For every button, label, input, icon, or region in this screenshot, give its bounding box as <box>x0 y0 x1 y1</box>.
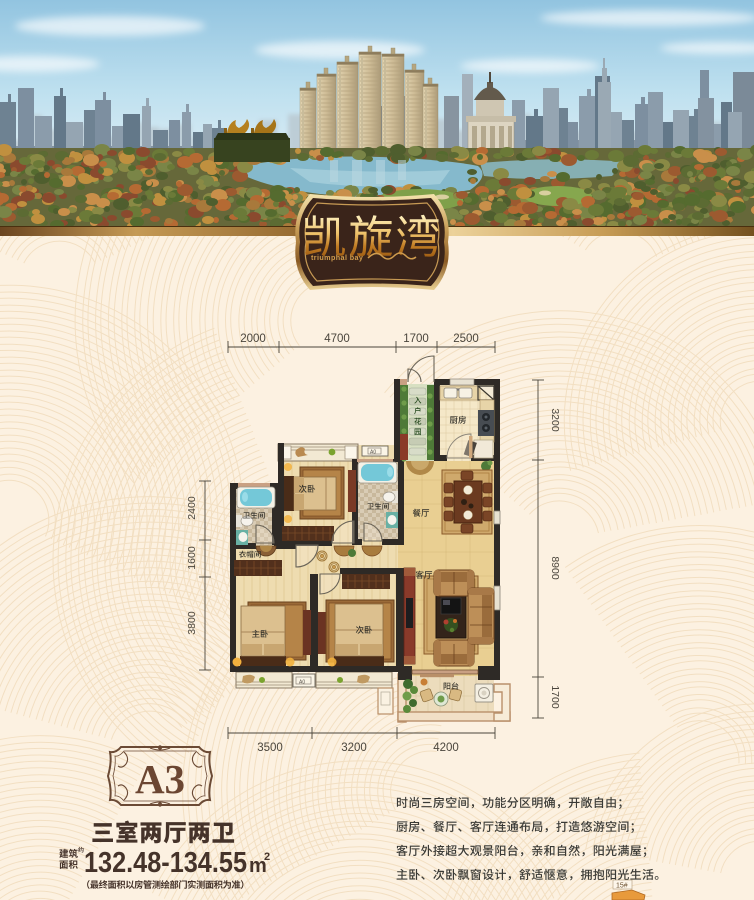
svg-text:8900: 8900 <box>549 556 561 580</box>
svg-text:2400: 2400 <box>186 496 198 520</box>
svg-text:3500: 3500 <box>257 742 283 754</box>
svg-text:A0: A0 <box>370 450 376 456</box>
svg-text:A0: A0 <box>299 680 305 686</box>
svg-text:3200: 3200 <box>341 742 367 754</box>
svg-text:132.48-134.55: 132.48-134.55 <box>84 847 247 879</box>
svg-text:4200: 4200 <box>433 742 459 754</box>
svg-text:2: 2 <box>264 851 270 863</box>
svg-text:2000: 2000 <box>240 333 266 345</box>
svg-text:1700: 1700 <box>549 685 561 709</box>
svg-text:A3: A3 <box>135 756 185 802</box>
svg-text:3200: 3200 <box>549 408 561 432</box>
svg-text:3800: 3800 <box>186 611 198 635</box>
svg-text:1600: 1600 <box>186 546 198 570</box>
svg-text:1700: 1700 <box>403 333 429 345</box>
svg-text:triumphal bay: triumphal bay <box>311 253 363 262</box>
svg-text:15#: 15# <box>616 883 628 890</box>
svg-text:2500: 2500 <box>453 333 479 345</box>
svg-text:4700: 4700 <box>324 333 350 345</box>
